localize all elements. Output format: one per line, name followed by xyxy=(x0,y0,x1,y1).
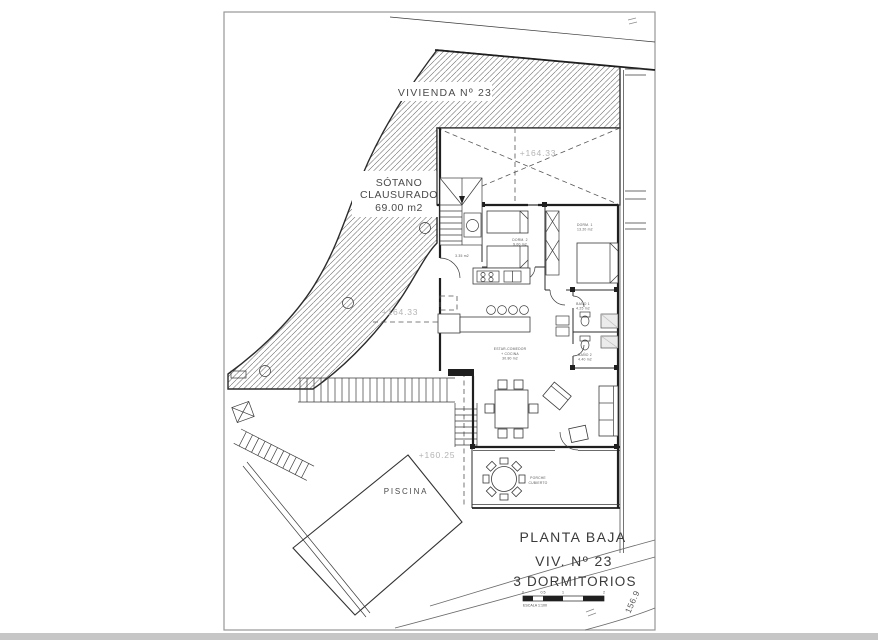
wardrobe xyxy=(546,211,559,275)
dorm2-area: 9.00 m2 xyxy=(513,243,527,247)
porche-label-2: CUBIERTO xyxy=(529,481,548,485)
dorm1-area: 13.20 m2 xyxy=(577,228,593,232)
floor-plan-drawing: VIVIENDA Nº 23 SÓTANO CLAUSURADO 69.00 m… xyxy=(0,0,878,640)
porch-table xyxy=(483,458,525,500)
interior-stairs xyxy=(440,178,482,245)
bano2-name: BAÑO 2 xyxy=(578,352,592,357)
porch-chair-icon xyxy=(483,475,489,483)
basement-label-2: CLAUSURADO xyxy=(360,189,438,201)
basement-label-3: 69.00 m2 xyxy=(375,202,423,214)
side-seat xyxy=(569,425,589,442)
title-line-3: 3 DORMITORIOS xyxy=(513,574,636,589)
dining-table xyxy=(495,390,528,428)
pool-terrace-elevation: +160.25 xyxy=(419,450,456,460)
porche-label-1: PORCHE xyxy=(530,476,546,480)
scale-tick: 0.5 xyxy=(541,591,546,595)
sofa xyxy=(599,386,618,436)
plan-sheet: VIVIENDA Nº 23 SÓTANO CLAUSURADO 69.00 m… xyxy=(0,0,878,640)
bano1-name: BAÑO 1 xyxy=(576,301,590,306)
chair-icon xyxy=(485,404,494,413)
scale-tick: 2 xyxy=(603,591,605,595)
chair-icon xyxy=(514,380,523,389)
scale-tick: 1 xyxy=(562,591,564,595)
stair-area-label: 3.35 m2 xyxy=(455,254,469,258)
island-left xyxy=(438,314,460,333)
dorm1-name: DORM. 1 xyxy=(577,223,593,227)
plot-label: VIVIENDA Nº 23 xyxy=(398,87,492,99)
bano2-area: 4.40 m2 xyxy=(578,358,592,362)
title-line-1: PLANTA BAJA xyxy=(520,529,627,545)
dorm1-furniture xyxy=(577,243,618,283)
scale-caption: ESCALA 1:100 xyxy=(523,604,547,608)
chair-icon xyxy=(498,380,507,389)
pool-label: PISCINA xyxy=(384,487,429,496)
void-elevation: +164.33 xyxy=(520,148,557,158)
porch-chair-icon xyxy=(519,475,525,483)
dorm2-name: DORM. 2 xyxy=(512,238,528,242)
chair-icon xyxy=(529,404,538,413)
scale-tick: 0 xyxy=(522,591,524,595)
bano1-area: 4.25 m2 xyxy=(576,307,590,311)
terrace-elevation: +164.33 xyxy=(382,307,419,317)
island-bar xyxy=(460,317,530,332)
estar-label-1: ESTAR-COMEDOR xyxy=(494,347,527,351)
estar-label-2: + COCINA xyxy=(501,352,519,356)
estar-label-3: 30.80 m2 xyxy=(502,356,518,360)
porch-chair-icon xyxy=(500,494,508,500)
title-line-2: VIV. Nº 23 xyxy=(535,553,613,569)
chair-icon xyxy=(498,429,507,438)
chair-icon xyxy=(514,429,523,438)
porch-chair-icon xyxy=(500,458,508,464)
bottom-strip xyxy=(0,633,878,640)
basement-label-1: SÓTANO xyxy=(376,176,423,189)
